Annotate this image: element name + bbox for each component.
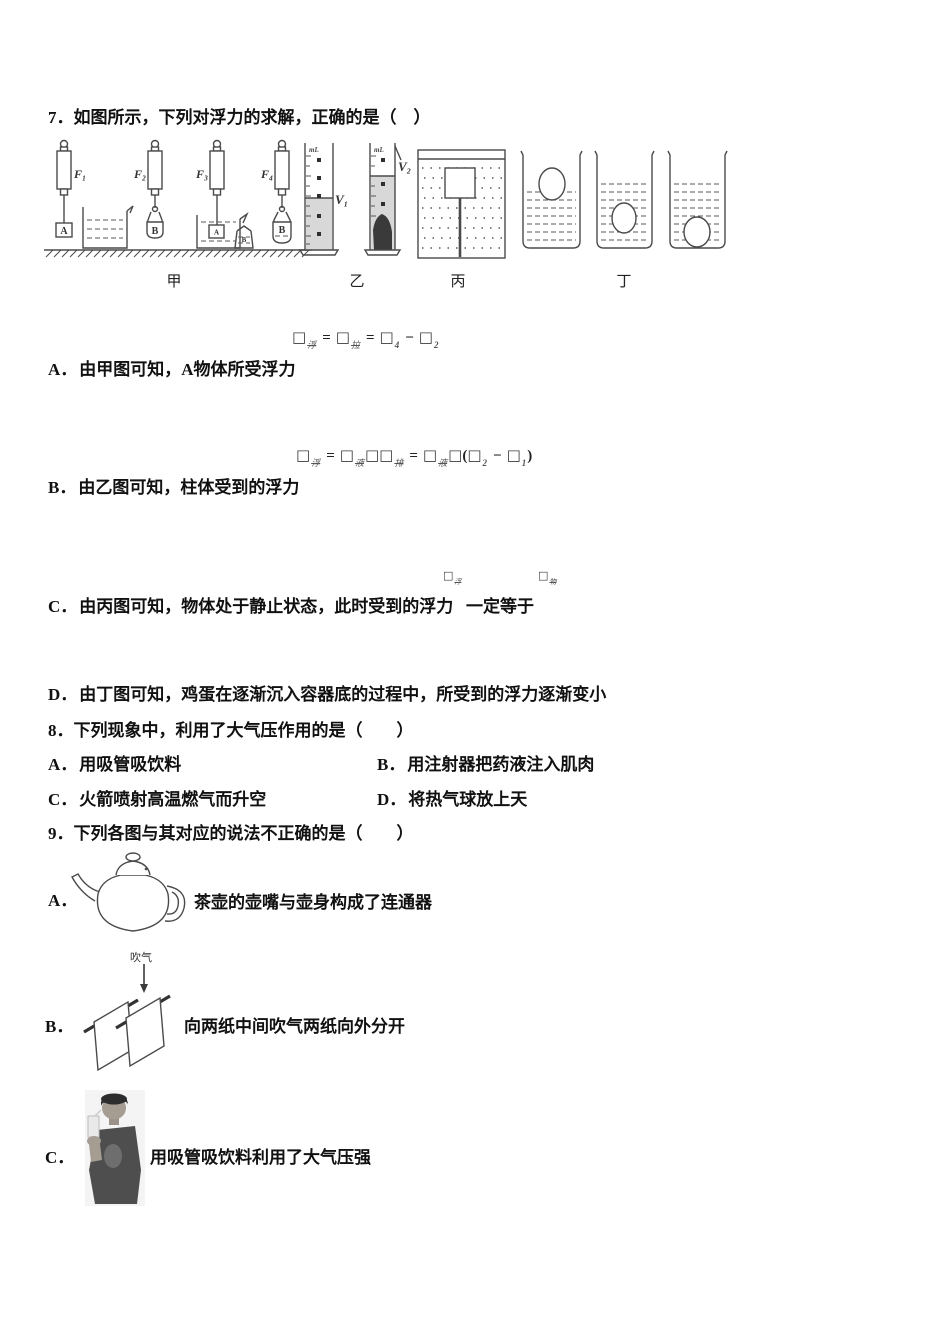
q8-option-d: D．将热气球放上天 bbox=[377, 785, 527, 810]
q8-option-b: B．用注射器把药液注入肌肉 bbox=[377, 750, 594, 775]
scale-label-f3: F₃ bbox=[195, 167, 208, 181]
volume-label-v1: V₁ bbox=[335, 192, 348, 207]
q7-option-a-formula: □浮=□拉=□4−□2 bbox=[292, 328, 439, 351]
spring-scale-1: A F₁ bbox=[56, 141, 86, 238]
q7-option-c: C．由丙图可知，物体处于静止状态，此时受到的浮力 bbox=[48, 592, 453, 617]
ml-label-1: mL bbox=[309, 146, 319, 154]
q9-option-b-caption: 向两纸中间吹气两纸向外分开 bbox=[184, 1012, 405, 1037]
paper-right bbox=[126, 998, 164, 1066]
q7-option-a-label: A． bbox=[48, 360, 77, 379]
group-label-jia: 甲 bbox=[166, 274, 181, 290]
paper-left bbox=[94, 1002, 132, 1070]
block-a2-label: A bbox=[214, 229, 219, 237]
q7-option-d-text: 由丁图可知，鸡蛋在逐渐沉入容器底的过程中，所受到的浮力逐渐变小 bbox=[79, 685, 606, 704]
egg-floating bbox=[539, 168, 565, 200]
q8-option-c-text: 火箭喷射高温燃气而升空 bbox=[79, 790, 266, 809]
q7-figure: A F₁ B F₂ F₃ bbox=[44, 138, 734, 290]
q7-option-a: A．由甲图可知，A物体所受浮力 bbox=[48, 355, 296, 380]
q7-title: 7．如图所示，下列对浮力的求解，正确的是（ ） bbox=[48, 103, 431, 128]
group-label-bing: 丙 bbox=[450, 274, 465, 290]
q7-option-a-text: 由甲图可知，A物体所受浮力 bbox=[79, 360, 295, 379]
cylinder-v2: mL V₂ bbox=[365, 143, 411, 255]
boy-arm bbox=[89, 1144, 102, 1162]
q7-option-b-formula: □浮=□液□□排=□液□(□2−□1) bbox=[296, 446, 532, 469]
q8-option-c: C．火箭喷射高温燃气而升空 bbox=[48, 785, 266, 810]
q8-option-b-text: 用注射器把药液注入肌肉 bbox=[407, 755, 594, 774]
spring-scale-2: B F₂ bbox=[133, 141, 163, 239]
tank-bing bbox=[418, 150, 505, 258]
volume-label-v2: V₂ bbox=[398, 159, 411, 174]
q7-option-c-text-after: 一定等于 bbox=[466, 592, 534, 617]
beaker-egg-3 bbox=[668, 151, 727, 248]
overflow-jar: B bbox=[235, 226, 253, 248]
q8-option-b-label: B． bbox=[377, 755, 405, 774]
q7-option-d: D．由丁图可知，鸡蛋在逐渐沉入容器底的过程中，所受到的浮力逐渐变小 bbox=[48, 680, 606, 705]
scale-label-f4: F₄ bbox=[260, 167, 273, 181]
q8-option-c-label: C． bbox=[48, 790, 77, 809]
teapot-spout bbox=[72, 874, 100, 901]
group-label-ding: 丁 bbox=[616, 274, 631, 290]
q7-option-b-text: 由乙图可知，柱体受到的浮力 bbox=[78, 478, 299, 497]
q7-option-c-text-before: 由丙图可知，物体处于静止状态，此时受到的浮力 bbox=[79, 597, 453, 616]
q7-option-b-label: B． bbox=[48, 478, 76, 497]
ml-label-2: mL bbox=[374, 146, 384, 154]
q7-option-c-label: C． bbox=[48, 597, 77, 616]
beaker-egg-1 bbox=[521, 151, 582, 248]
spring-scale-4: B F₄ bbox=[260, 141, 291, 244]
boy-photo bbox=[85, 1090, 145, 1206]
q9-option-a-caption: 茶壶的壶嘴与壶身构成了连通器 bbox=[194, 888, 432, 913]
egg-sunk bbox=[684, 217, 710, 247]
block-a-label: A bbox=[60, 226, 68, 237]
ground-hatching bbox=[44, 250, 312, 257]
blow-arrow-head bbox=[140, 984, 148, 993]
q9-option-c-label: C． bbox=[45, 1143, 74, 1168]
q9-title: 9．下列各图与其对应的说法不正确的是（ ） bbox=[48, 819, 414, 844]
teapot-knob bbox=[126, 853, 140, 861]
drink-cup bbox=[88, 1116, 99, 1137]
teapot-body bbox=[97, 875, 168, 931]
q7-option-c-formula-fbuoy: □浮 bbox=[443, 566, 462, 587]
q7-option-c-formula-gobj: □物 bbox=[538, 566, 557, 587]
jar-b-label: B bbox=[242, 236, 247, 244]
teapot-lid bbox=[116, 861, 150, 875]
block-on-stand bbox=[445, 168, 475, 198]
bottle-b-label: B bbox=[152, 226, 159, 237]
q7-option-b: B．由乙图可知，柱体受到的浮力 bbox=[48, 473, 299, 498]
cylinder-v1: mL V₁ bbox=[300, 143, 348, 255]
q8-option-a-text: 用吸管吸饮料 bbox=[79, 755, 181, 774]
q8-option-a-label: A． bbox=[48, 755, 77, 774]
bottle-b2-label: B bbox=[279, 225, 286, 236]
q9-option-c-caption: 用吸管吸饮料利用了大气压强 bbox=[150, 1143, 371, 1168]
q7-option-d-label: D． bbox=[48, 685, 77, 704]
q9-option-b-label: B． bbox=[45, 1012, 73, 1037]
q8-option-a: A．用吸管吸饮料 bbox=[48, 750, 181, 775]
teapot-figure bbox=[68, 844, 198, 936]
exam-page: 7．如图所示，下列对浮力的求解，正确的是（ ） A F₁ bbox=[0, 0, 950, 1344]
blow-label: 吹气 bbox=[130, 950, 152, 964]
scale-label-f1: F₁ bbox=[73, 167, 86, 181]
q8-option-d-text: 将热气球放上天 bbox=[408, 790, 527, 809]
beaker-egg-2 bbox=[595, 151, 654, 248]
q8-title: 8．下列现象中，利用了大气压作用的是（ ） bbox=[48, 716, 414, 741]
beaker-1 bbox=[83, 206, 133, 248]
papers-figure: 吹气 bbox=[80, 948, 192, 1072]
group-label-yi: 乙 bbox=[349, 274, 364, 290]
spring-scale-3: F₃ bbox=[195, 141, 224, 227]
scale-label-f2: F₂ bbox=[133, 167, 146, 181]
shirt-print bbox=[104, 1144, 122, 1168]
egg-suspended bbox=[612, 203, 636, 233]
q8-option-d-label: D． bbox=[377, 790, 406, 809]
